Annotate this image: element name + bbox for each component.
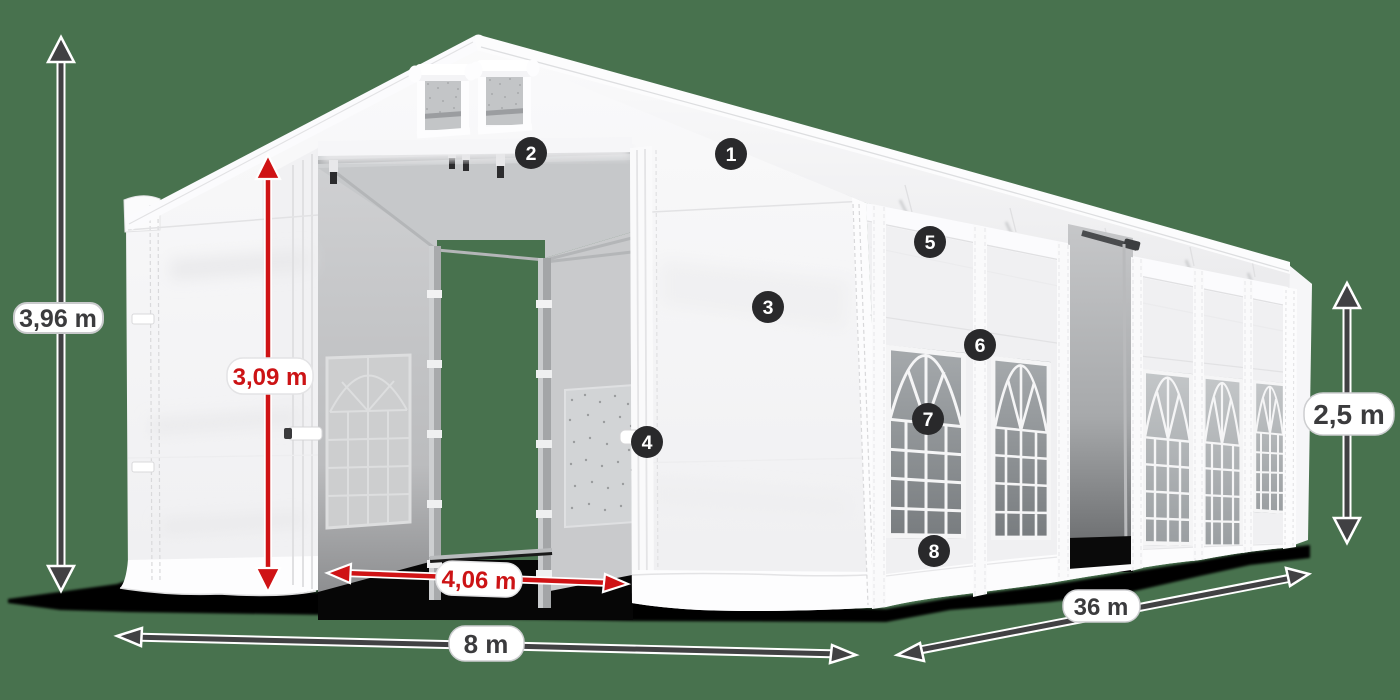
svg-text:7: 7 <box>923 409 934 431</box>
svg-text:4: 4 <box>642 432 653 454</box>
svg-text:36 m: 36 m <box>1074 594 1129 621</box>
svg-text:8 m: 8 m <box>464 629 509 659</box>
svg-text:2: 2 <box>526 143 537 165</box>
svg-text:2,5 m: 2,5 m <box>1313 399 1385 430</box>
svg-text:3: 3 <box>763 297 774 319</box>
svg-text:5: 5 <box>925 232 936 254</box>
svg-text:1: 1 <box>726 144 737 166</box>
svg-text:3,09 m: 3,09 m <box>233 364 308 391</box>
svg-text:3,96 m: 3,96 m <box>19 305 97 333</box>
svg-text:8: 8 <box>929 541 940 563</box>
svg-text:4,06 m: 4,06 m <box>441 566 517 596</box>
svg-text:6: 6 <box>975 335 986 357</box>
